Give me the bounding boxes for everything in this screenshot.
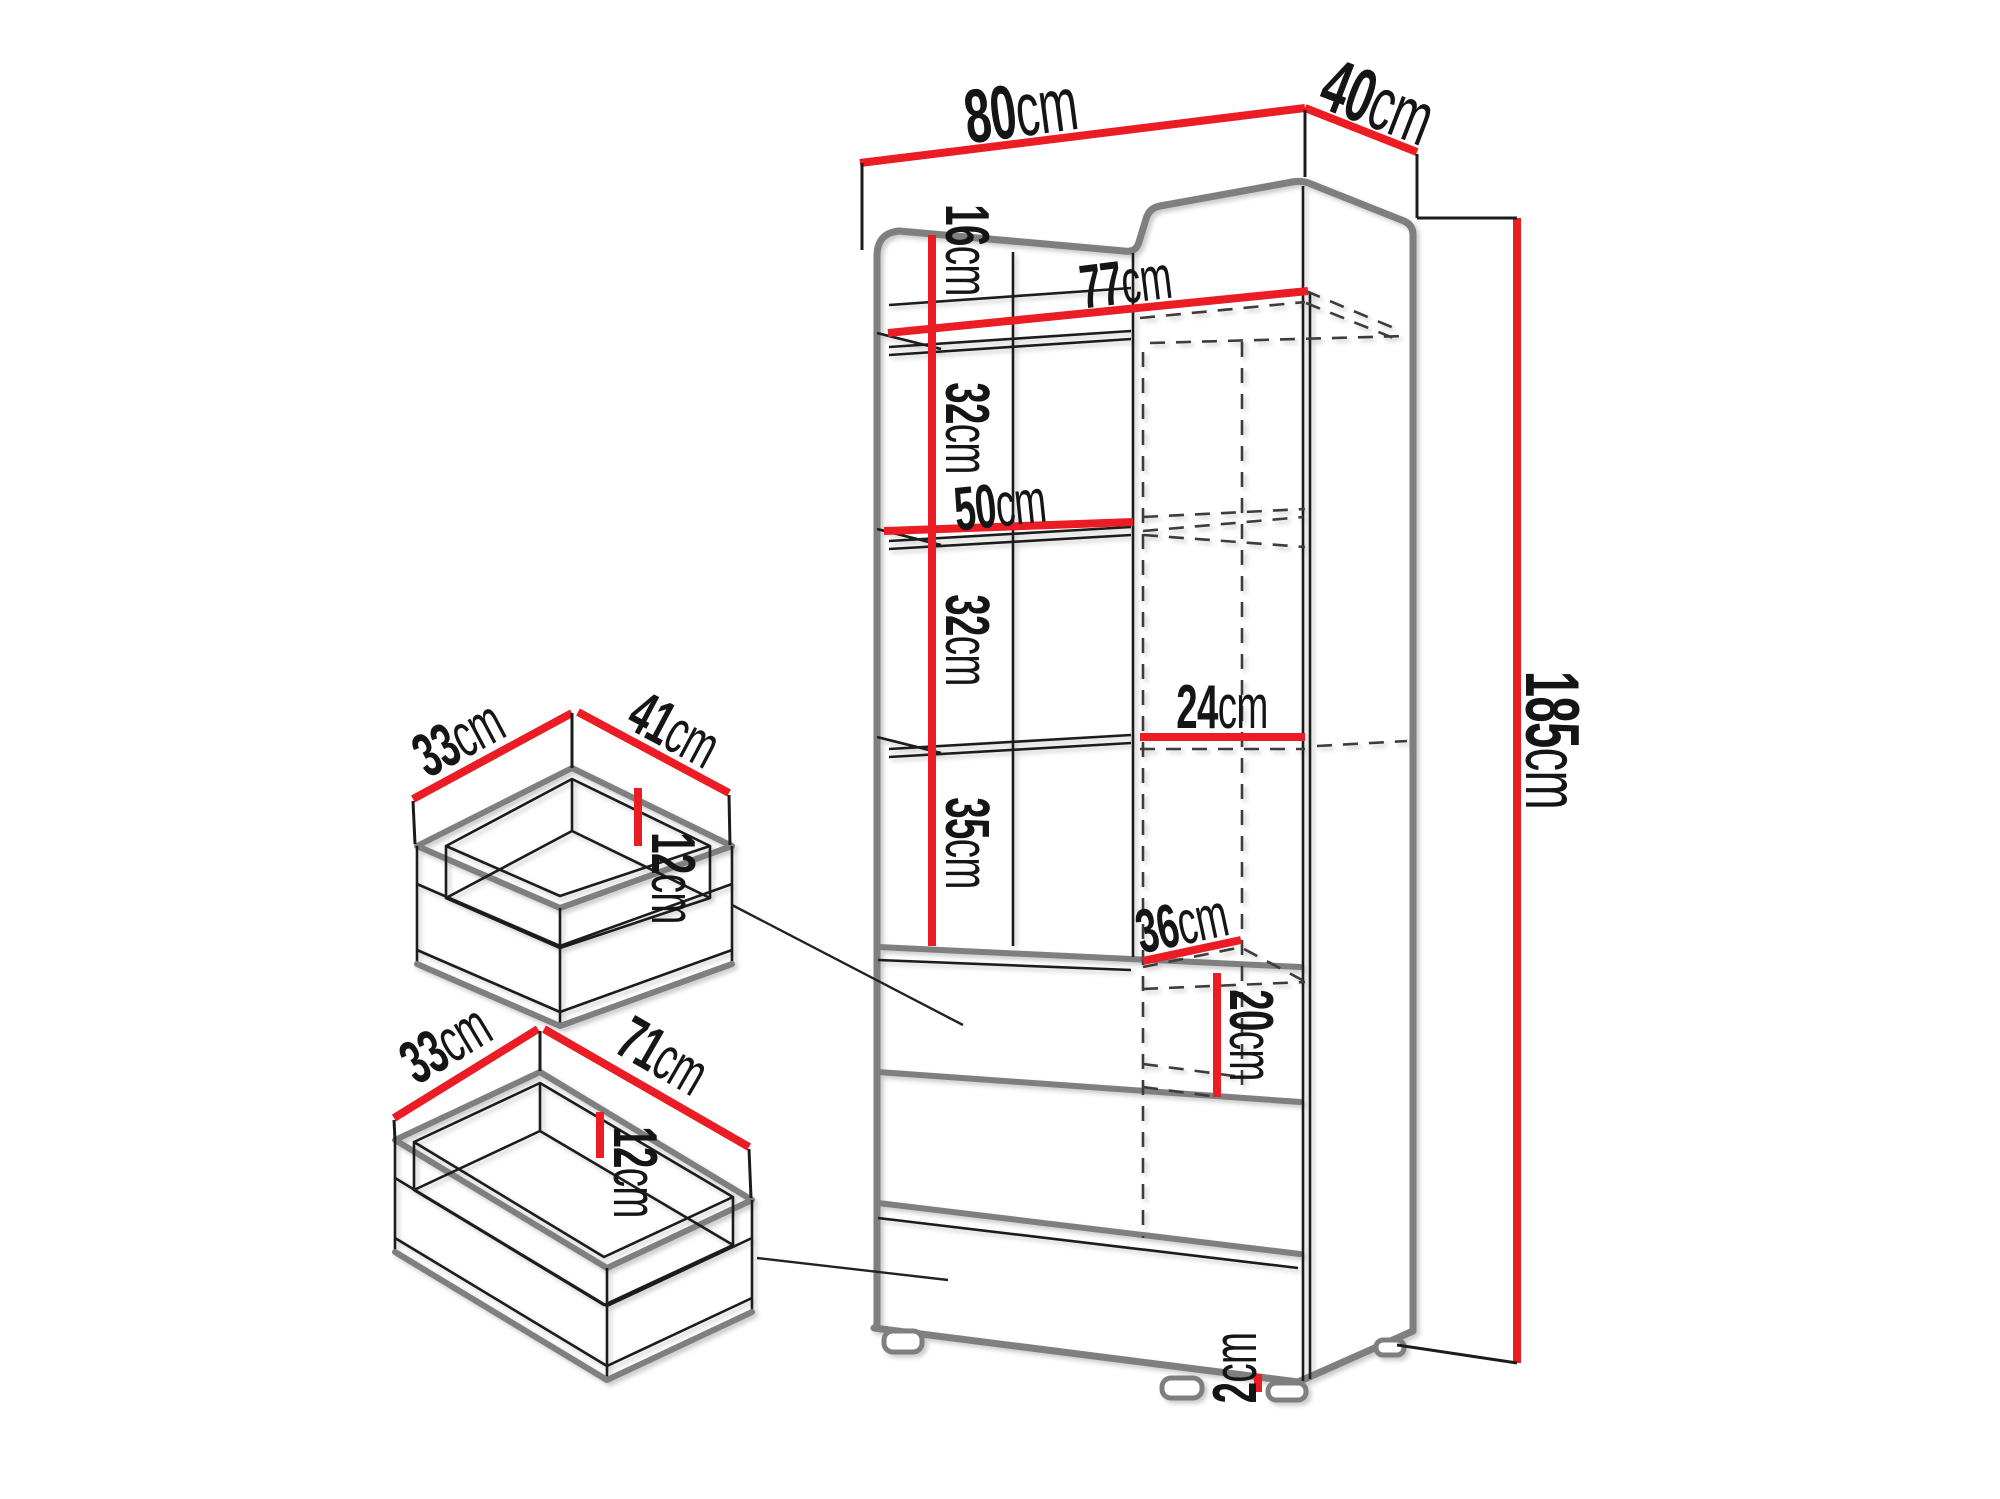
dim-label-185cm: 185cm	[1509, 671, 1593, 809]
cabinet-outline	[877, 181, 1413, 1330]
dim-label-32cm-lower: 32cm	[933, 594, 1003, 686]
cabinet-foot	[1376, 1340, 1404, 1355]
furniture-dimension-diagram: 80cm 40cm 16cm 77cm 32cm 50cm 32cm 24cm …	[0, 0, 2000, 1499]
cabinet-drawer-division	[878, 1203, 1300, 1254]
dim-label-small-drawer-33cm: 33cm	[401, 686, 515, 791]
dim-label-80cm: 80cm	[959, 62, 1082, 160]
cabinet-bottom-edge	[874, 1328, 1413, 1382]
large-drawer-callout-line	[757, 1258, 948, 1280]
dim-label-50cm: 50cm	[951, 465, 1049, 544]
cabinet-foot	[1268, 1383, 1306, 1400]
dim-label-large-drawer-33cm: 33cm	[388, 990, 502, 1097]
dim-label-large-drawer-71cm: 71cm	[606, 1002, 720, 1108]
dim-label-16cm: 16cm	[933, 204, 1003, 296]
dim-label-40cm: 40cm	[1309, 43, 1444, 162]
dim-label-20cm: 20cm	[1217, 989, 1287, 1081]
dim-label-32cm-upper: 32cm	[933, 382, 1003, 474]
diagram-canvas: 80cm 40cm 16cm 77cm 32cm 50cm 32cm 24cm …	[0, 0, 2000, 1499]
cabinet-shelf	[877, 735, 1131, 757]
cabinet-drawer-division	[878, 947, 1300, 967]
dim-label-small-drawer-12cm: 12cm	[639, 832, 709, 924]
cabinet-foot	[1162, 1378, 1202, 1398]
dimension-extension-lines	[394, 110, 1517, 1363]
large-drawer-base-line	[395, 1238, 752, 1366]
dim-label-small-drawer-41cm: 41cm	[617, 677, 731, 782]
dim-label-24cm: 24cm	[1176, 672, 1268, 742]
dim-label-36cm: 36cm	[1129, 879, 1233, 966]
dim-label-35cm: 35cm	[933, 797, 1003, 889]
cabinet-foot	[884, 1331, 922, 1352]
dim-label-large-drawer-12cm: 12cm	[601, 1126, 671, 1218]
cabinet-shelf	[877, 331, 1131, 355]
dim-line-80cm	[860, 108, 1305, 163]
cabinet-shelf-underline	[878, 960, 1131, 970]
dim-label-2cm: 2cm	[1200, 1333, 1270, 1404]
dim-label-77cm: 77cm	[1076, 241, 1175, 321]
cabinet-drawing	[874, 181, 1413, 1400]
